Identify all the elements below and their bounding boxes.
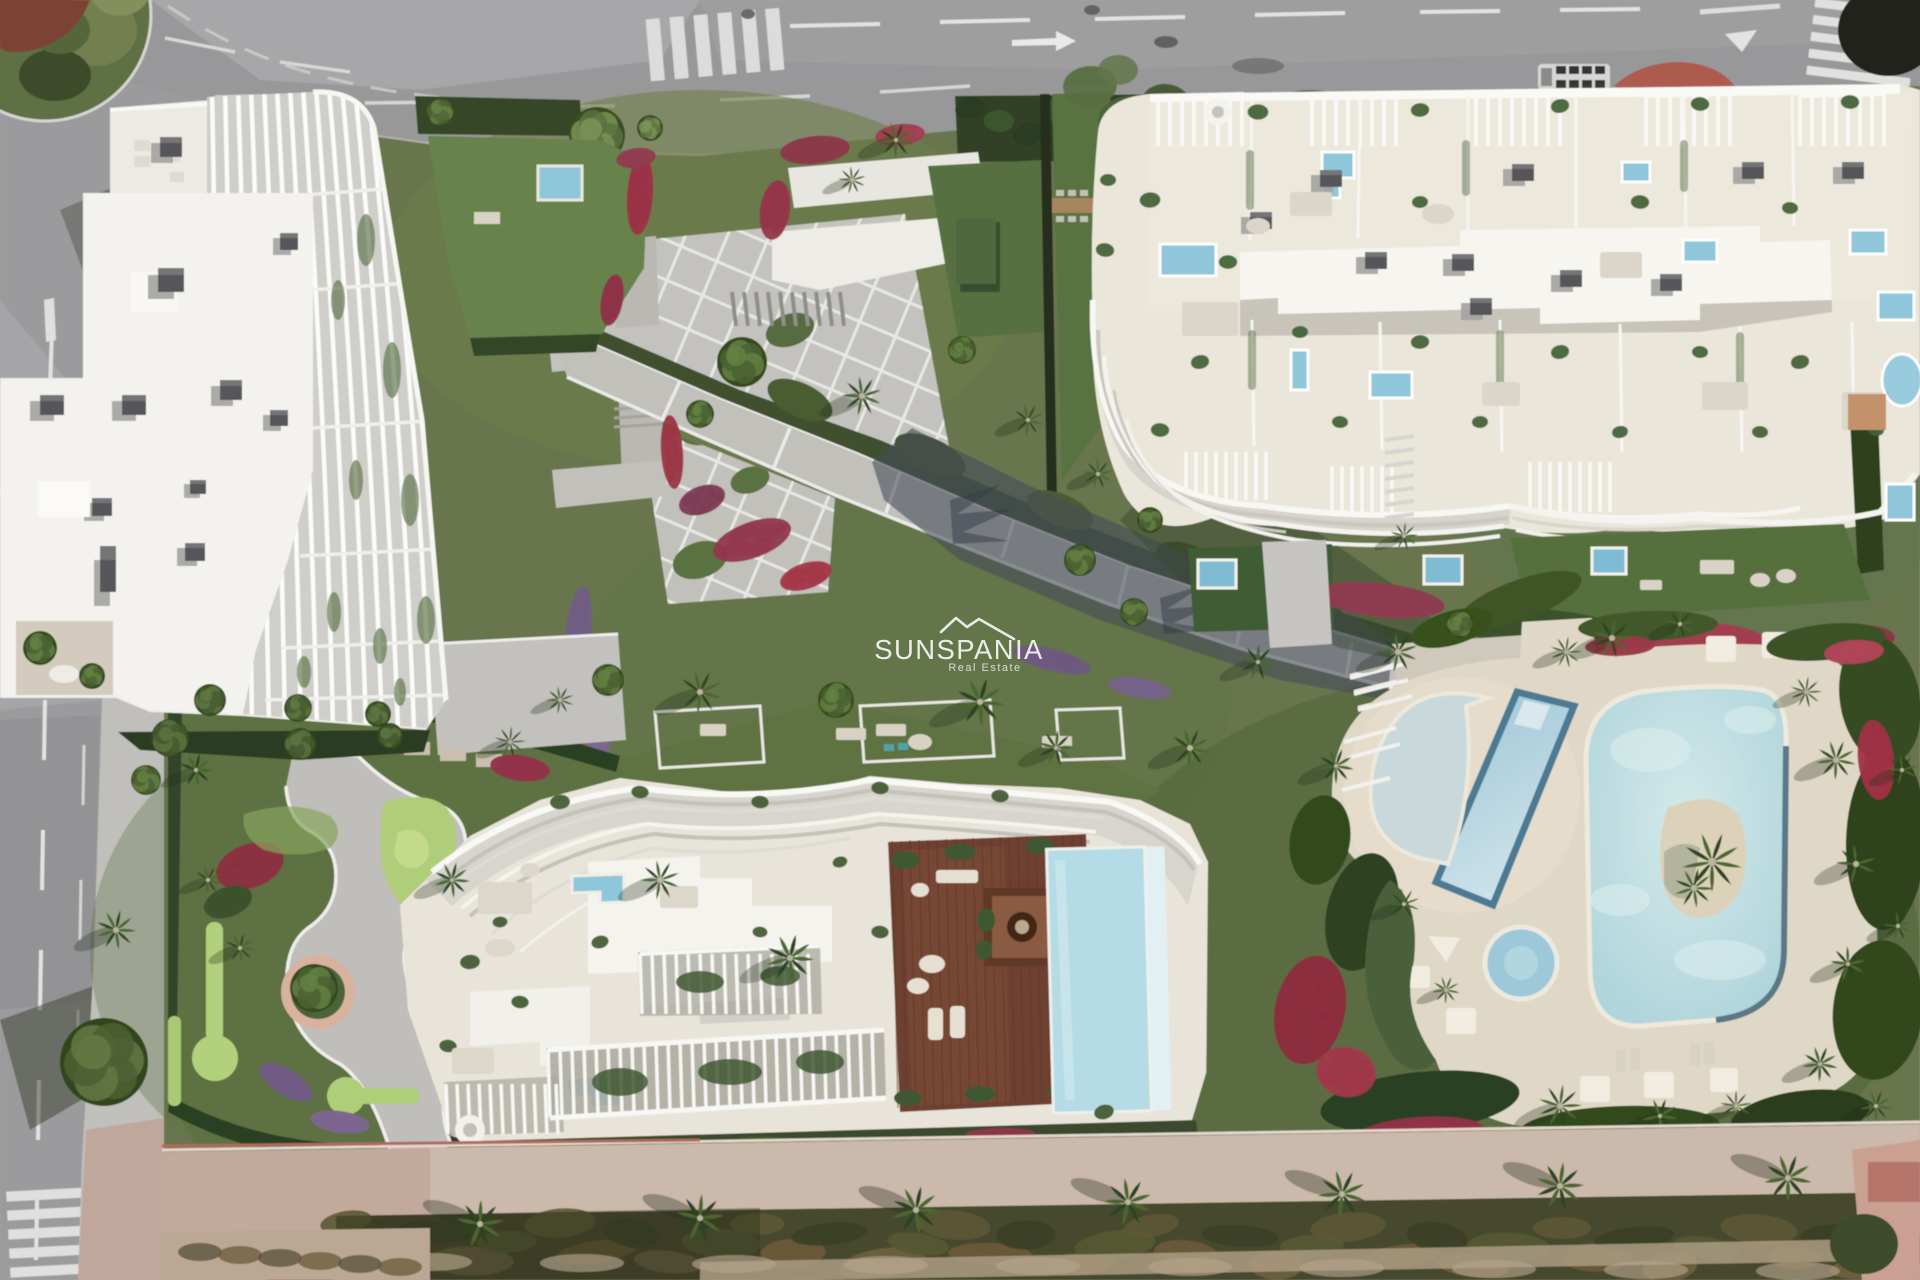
svg-text:SUNSPANIA: SUNSPANIA [874,634,1044,665]
svg-text:Real Estate: Real Estate [948,662,1021,674]
